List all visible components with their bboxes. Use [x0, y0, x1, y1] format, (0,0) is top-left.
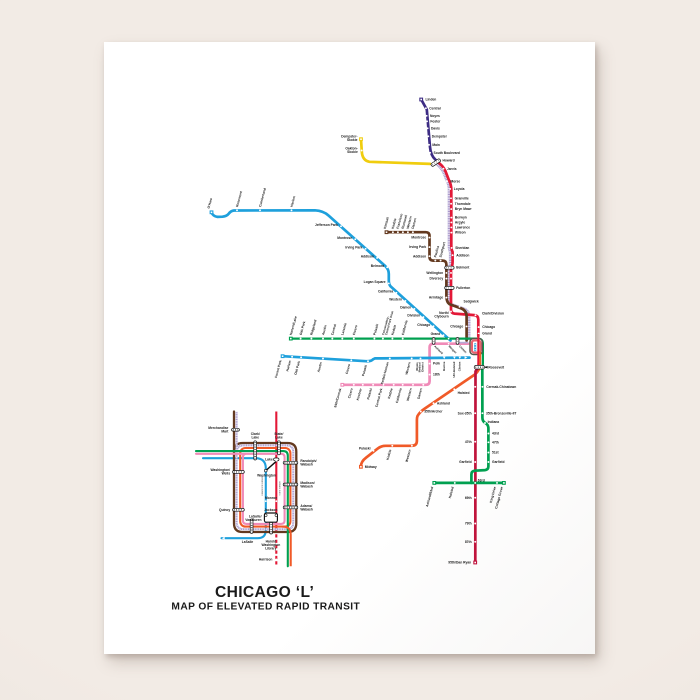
- svg-text:Pulaski: Pulaski: [373, 323, 380, 335]
- svg-text:43rd: 43rd: [492, 432, 499, 436]
- svg-text:Montrose: Montrose: [337, 236, 352, 240]
- svg-text:Addison: Addison: [456, 253, 469, 257]
- svg-text:Midway: Midway: [365, 465, 377, 469]
- svg-text:Harlem/Lake: Harlem/Lake: [289, 316, 298, 336]
- svg-text:Indiana: Indiana: [488, 420, 500, 424]
- svg-text:Jefferson Park: Jefferson Park: [315, 223, 338, 227]
- svg-text:Southport: Southport: [439, 241, 447, 258]
- svg-text:Austin: Austin: [316, 362, 323, 373]
- svg-text:Oak Park: Oak Park: [299, 321, 307, 336]
- svg-text:Cermak-Chinatown: Cermak-Chinatown: [486, 385, 516, 389]
- svg-text:Western: Western: [389, 298, 402, 302]
- svg-text:51st: 51st: [492, 451, 500, 455]
- svg-text:Dempster: Dempster: [432, 134, 448, 138]
- svg-text:69th: 69th: [465, 496, 472, 500]
- svg-text:Morse: Morse: [451, 179, 461, 183]
- svg-text:Clybourn: Clybourn: [434, 314, 448, 318]
- svg-text:Oak Park: Oak Park: [294, 360, 302, 375]
- svg-text:Sox-35th: Sox-35th: [458, 411, 472, 415]
- svg-text:Damen: Damen: [400, 306, 411, 310]
- svg-text:Sheridan: Sheridan: [455, 246, 469, 250]
- svg-text:Addison: Addison: [361, 255, 374, 259]
- svg-text:Kimball: Kimball: [383, 217, 390, 230]
- svg-text:Western: Western: [404, 362, 411, 376]
- svg-text:O'Hare: O'Hare: [207, 197, 214, 209]
- svg-text:Division: Division: [407, 314, 420, 318]
- svg-text:Chicago: Chicago: [450, 325, 463, 329]
- svg-text:California: California: [401, 320, 409, 336]
- svg-text:Jarvis: Jarvis: [447, 167, 457, 171]
- svg-text:MAP OF ELEVATED RAPID TRANSIT: MAP OF ELEVATED RAPID TRANSIT: [171, 602, 360, 613]
- svg-text:Diversey: Diversey: [429, 277, 443, 281]
- svg-text:Kedzie: Kedzie: [391, 324, 398, 335]
- svg-text:Van Buren: Van Buren: [245, 518, 261, 522]
- svg-text:Forest Park: Forest Park: [274, 359, 283, 378]
- svg-text:Central Park: Central Park: [374, 388, 383, 408]
- svg-text:47th: 47th: [492, 440, 499, 444]
- svg-text:Irving Park: Irving Park: [345, 245, 362, 249]
- svg-text:Irving Park: Irving Park: [409, 245, 426, 249]
- svg-text:CHICAGO ‘L’: CHICAGO ‘L’: [215, 584, 314, 601]
- svg-text:California: California: [395, 388, 403, 404]
- svg-text:Harlem: Harlem: [285, 360, 292, 372]
- svg-text:Clinton: Clinton: [457, 361, 461, 371]
- svg-text:Wells: Wells: [222, 471, 231, 475]
- svg-text:Loyola: Loyola: [454, 187, 465, 191]
- svg-text:Chicago: Chicago: [417, 323, 430, 327]
- svg-text:Ridgeland: Ridgeland: [310, 319, 318, 335]
- svg-text:Library: Library: [265, 547, 276, 551]
- svg-text:Racine: Racine: [442, 361, 446, 371]
- svg-text:Wabash: Wabash: [300, 484, 313, 488]
- svg-text:Main: Main: [432, 143, 440, 147]
- svg-text:Noyes: Noyes: [430, 114, 440, 118]
- svg-text:Central: Central: [429, 106, 440, 110]
- svg-text:Rosemont: Rosemont: [235, 190, 243, 207]
- svg-text:Pulaski: Pulaski: [361, 364, 368, 376]
- svg-text:54th/Cermak: 54th/Cermak: [333, 388, 342, 408]
- svg-text:Harlem: Harlem: [290, 195, 297, 207]
- svg-text:Jackson: Jackson: [264, 508, 277, 512]
- svg-text:Armitage: Armitage: [429, 296, 443, 300]
- svg-text:Ashland: Ashland: [437, 401, 450, 405]
- svg-text:Kostner: Kostner: [356, 387, 363, 401]
- svg-text:Austin: Austin: [321, 325, 328, 336]
- svg-text:Montrose: Montrose: [411, 236, 426, 240]
- svg-text:South Boulevard: South Boulevard: [434, 151, 460, 155]
- svg-text:Clark/Division: Clark/Division: [482, 311, 504, 315]
- svg-text:Damen: Damen: [417, 388, 424, 400]
- svg-text:Grand: Grand: [482, 332, 492, 336]
- svg-text:Central: Central: [330, 324, 337, 336]
- svg-text:Foster: Foster: [430, 119, 441, 123]
- svg-text:Cicero: Cicero: [345, 364, 352, 375]
- svg-text:STATE SUBWAY: STATE SUBWAY: [279, 480, 282, 495]
- svg-text:Garfield: Garfield: [492, 460, 504, 464]
- svg-text:Polk: Polk: [433, 362, 440, 366]
- svg-text:18th: 18th: [433, 373, 440, 377]
- svg-text:Lake: Lake: [265, 457, 273, 461]
- svg-text:Roosevelt: Roosevelt: [488, 366, 505, 370]
- svg-text:Wilson: Wilson: [455, 231, 466, 235]
- svg-text:Washington: Washington: [257, 474, 276, 478]
- svg-text:Cicero: Cicero: [352, 325, 359, 336]
- svg-text:Thorndale: Thorndale: [455, 202, 471, 206]
- svg-text:Laramie: Laramie: [340, 322, 347, 335]
- svg-text:Garfield: Garfield: [459, 460, 471, 464]
- svg-text:47th: 47th: [465, 440, 472, 444]
- svg-text:Linden: Linden: [426, 98, 437, 102]
- svg-text:Belmont: Belmont: [371, 264, 385, 268]
- svg-text:Sedgwick: Sedgwick: [464, 299, 479, 303]
- svg-text:Skokie: Skokie: [347, 138, 358, 142]
- svg-text:Lake: Lake: [275, 436, 283, 440]
- svg-text:Lake: Lake: [252, 436, 260, 440]
- svg-text:Addison: Addison: [413, 254, 426, 258]
- svg-text:Cumberland: Cumberland: [258, 188, 267, 208]
- svg-text:Argyle: Argyle: [455, 221, 465, 225]
- svg-text:UIC-Halsted: UIC-Halsted: [452, 361, 456, 377]
- svg-text:Davis: Davis: [431, 126, 440, 130]
- svg-text:Lawrence: Lawrence: [455, 226, 470, 230]
- svg-text:California: California: [378, 289, 393, 293]
- svg-text:DEARBORN SUBWAY: DEARBORN SUBWAY: [261, 476, 264, 496]
- svg-text:Halsted: Halsted: [448, 486, 455, 499]
- svg-text:Western: Western: [406, 388, 413, 402]
- svg-text:Granville: Granville: [455, 196, 469, 200]
- svg-text:Clinton: Clinton: [458, 344, 468, 354]
- svg-text:Cicero: Cicero: [347, 388, 354, 399]
- svg-text:Morgan: Morgan: [448, 344, 458, 354]
- svg-text:Mart: Mart: [221, 429, 229, 433]
- svg-text:Kedzie-Homan: Kedzie-Homan: [380, 362, 390, 385]
- svg-text:87th: 87th: [465, 540, 472, 544]
- svg-text:Ashland/63rd: Ashland/63rd: [425, 486, 434, 507]
- svg-text:Belmont: Belmont: [456, 266, 470, 270]
- svg-text:Howard: Howard: [443, 159, 455, 163]
- svg-text:District: District: [420, 362, 424, 371]
- svg-text:95th/Dan Ryan: 95th/Dan Ryan: [448, 561, 471, 565]
- svg-text:Grand: Grand: [431, 332, 441, 336]
- svg-text:Wabash: Wabash: [300, 463, 313, 467]
- svg-text:Harrison: Harrison: [259, 558, 273, 562]
- svg-text:Monroe: Monroe: [265, 496, 277, 500]
- svg-text:Pulaski: Pulaski: [366, 388, 373, 400]
- svg-text:Kedzie: Kedzie: [387, 388, 394, 399]
- svg-text:Fullerton: Fullerton: [456, 286, 470, 290]
- svg-text:Quincy: Quincy: [219, 508, 230, 512]
- svg-text:Logan Square: Logan Square: [364, 280, 386, 284]
- svg-text:Chicago: Chicago: [482, 325, 495, 329]
- svg-text:79th: 79th: [465, 522, 472, 526]
- svg-text:Halsted: Halsted: [458, 391, 470, 395]
- svg-text:Kedzie: Kedzie: [386, 449, 393, 460]
- svg-text:Ashland: Ashland: [433, 344, 444, 355]
- svg-text:Wabash: Wabash: [300, 507, 313, 511]
- svg-text:LaSalle: LaSalle: [242, 540, 254, 544]
- svg-text:63rd: 63rd: [478, 479, 485, 483]
- svg-text:Skokie: Skokie: [347, 150, 358, 154]
- svg-text:35th-Bronzeville-IIT: 35th-Bronzeville-IIT: [486, 411, 516, 415]
- svg-text:Wellington: Wellington: [426, 271, 443, 275]
- svg-text:Western: Western: [405, 449, 412, 463]
- svg-text:Pulaski: Pulaski: [359, 446, 371, 450]
- svg-text:35th/Archer: 35th/Archer: [424, 410, 443, 414]
- svg-text:Bryn Mawr: Bryn Mawr: [455, 207, 473, 211]
- svg-text:Berwyn: Berwyn: [455, 216, 467, 220]
